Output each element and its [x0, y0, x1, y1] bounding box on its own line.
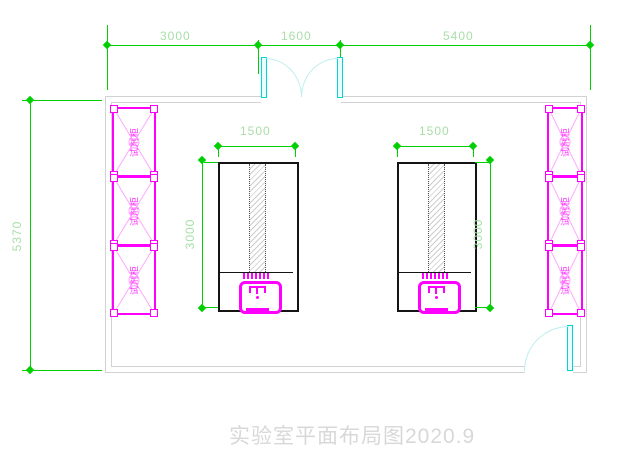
dimension-label: 5400 [443, 29, 474, 43]
drawing-title: 实验室平面布局图2020.9 [229, 420, 475, 450]
reagent-cabinet: 试剂柜 [112, 107, 156, 177]
left-dimension-line [30, 100, 31, 370]
reagent-cabinet: 试剂柜 [547, 107, 583, 177]
dimension-tick [26, 96, 34, 104]
cabinet-corner [150, 105, 158, 113]
cabinet-corner [110, 309, 118, 317]
reagent-cabinet: 试剂柜 [112, 245, 156, 315]
cabinet-label: 试剂柜 [559, 127, 572, 157]
reagent-cabinet: 试剂柜 [547, 245, 583, 315]
reagent-cabinet: 试剂柜 [547, 176, 583, 246]
cabinet-corner [577, 243, 585, 251]
cabinet-corner [577, 174, 585, 182]
dimension-tick [586, 41, 594, 49]
cabinet-corner [545, 174, 553, 182]
bench-width-dimension-line [397, 146, 473, 147]
faucet-leg [435, 288, 437, 294]
cabinet-corner [545, 309, 553, 317]
cabinet-corner [150, 309, 158, 317]
dimension-extension [107, 25, 108, 90]
cabinet-label: 试剂柜 [128, 265, 141, 295]
dimension-extension [204, 162, 218, 163]
cabinet-corner [150, 174, 158, 182]
cabinet-label: 试剂柜 [128, 127, 141, 157]
sink-drain-grille [243, 273, 271, 279]
door-swing-arc-icon [265, 58, 302, 97]
cabinet-corner [577, 309, 585, 317]
dimension-tick [103, 41, 111, 49]
faucet-leg [249, 288, 251, 293]
bench-width-dimension-line [218, 146, 295, 147]
door-swing-arc-icon [301, 58, 338, 97]
cabinet-label: 试剂柜 [128, 196, 141, 226]
bench-length-dimension-line [202, 160, 203, 308]
cabinet-corner [150, 243, 158, 251]
faucet-leg [256, 288, 258, 294]
faucet-leg [264, 288, 266, 293]
cabinet-corner [110, 243, 118, 251]
dimension-tick [26, 366, 34, 374]
dimension-label: 3000 [160, 29, 191, 43]
dimension-label: 3000 [471, 219, 485, 250]
cabinet-corner [545, 105, 553, 113]
cabinet-corner [577, 105, 585, 113]
dimension-label: 1500 [240, 124, 271, 138]
dimension-label: 1500 [419, 124, 450, 138]
basin-bottom-bar [246, 308, 269, 311]
dimension-label: 1600 [281, 29, 312, 43]
top-dimension-line [107, 45, 590, 46]
dimension-label: 5370 [10, 221, 24, 252]
sink-faucet-icon [418, 281, 461, 314]
bench-length-dimension-line [490, 160, 491, 308]
dimension-extension [590, 25, 591, 90]
cabinet-label: 试剂柜 [559, 265, 572, 295]
sink-drain-grille [422, 273, 450, 279]
bench-hatched-strip [428, 164, 445, 272]
dimension-tick [254, 41, 262, 49]
cabinet-corner [110, 174, 118, 182]
reagent-cabinet: 试剂柜 [112, 176, 156, 246]
wall-inner-outline [111, 102, 581, 367]
faucet-leg [443, 288, 445, 293]
cabinet-corner [545, 243, 553, 251]
dimension-tick [336, 41, 344, 49]
basin-bottom-bar [425, 308, 448, 311]
drain-dot [435, 296, 438, 299]
cabinet-corner [110, 105, 118, 113]
sink-faucet-icon [239, 281, 282, 314]
drain-dot [256, 296, 259, 299]
dimension-label: 3000 [183, 219, 197, 250]
faucet-leg [428, 288, 430, 293]
bench-hatched-strip [249, 164, 266, 272]
floor-plan-canvas: 3000 1600 5400 5370 试剂柜 试剂柜 试剂柜 试剂柜 [0, 0, 619, 469]
cabinet-label: 试剂柜 [559, 196, 572, 226]
